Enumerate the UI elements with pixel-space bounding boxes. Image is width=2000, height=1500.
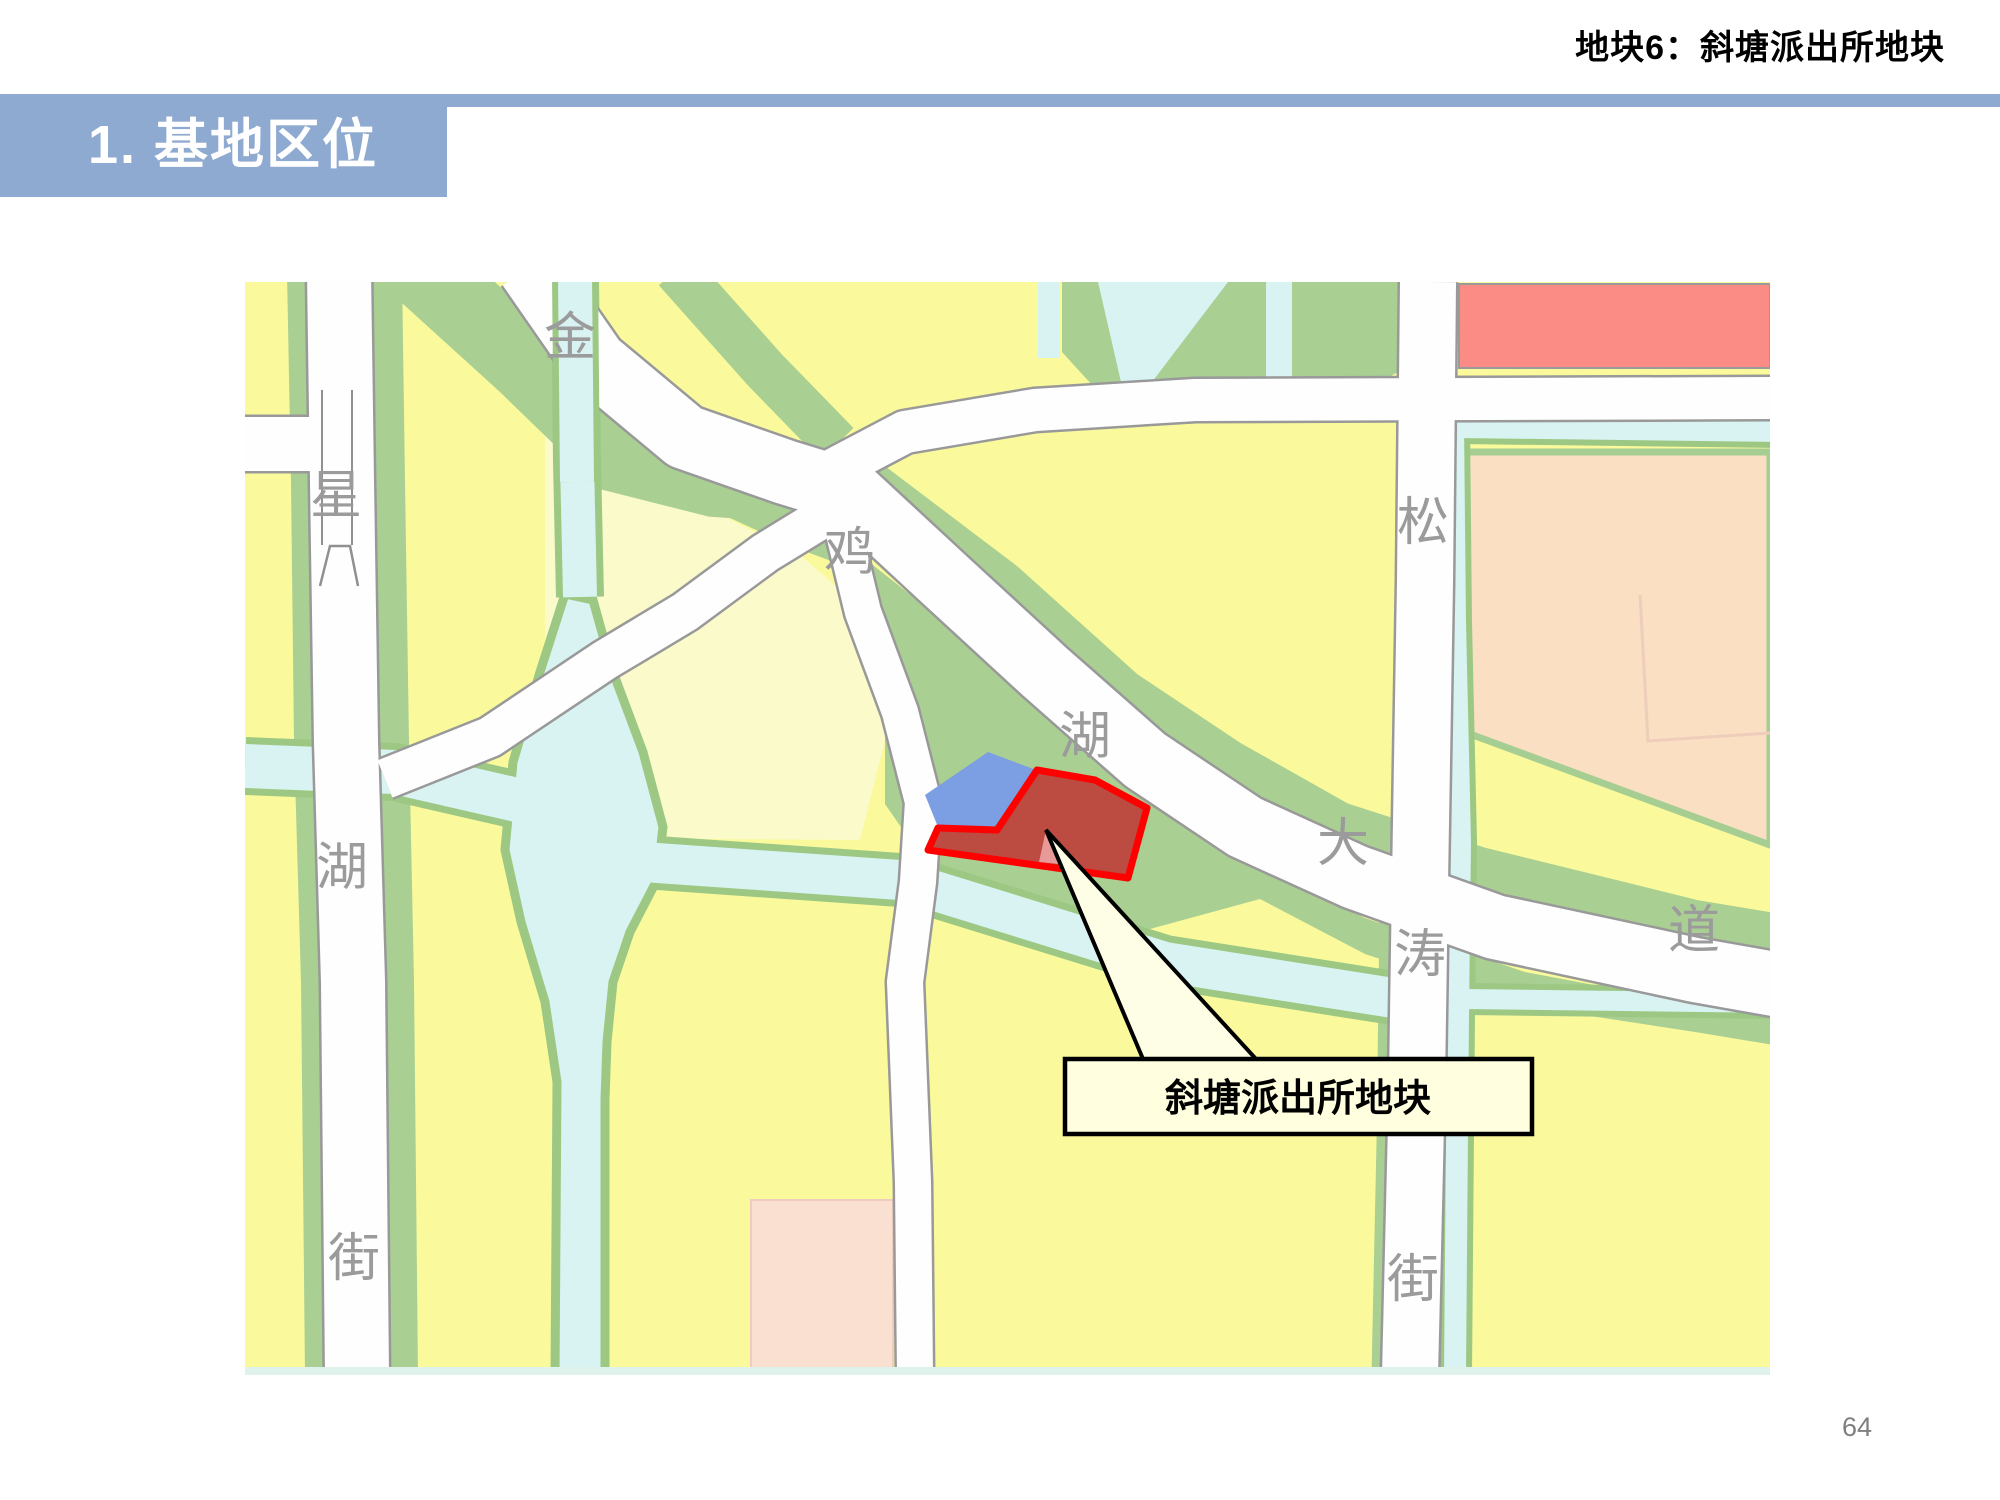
water-patch-top-1 [1038, 282, 1060, 358]
page-number: 64 [1842, 1412, 1872, 1443]
water-patch-top-3 [1266, 282, 1292, 380]
location-map: 金 鸡 湖 大 道 星 湖 街 松 涛 街 斜塘派出所地块 [245, 282, 1770, 1375]
map-bottom-strip [245, 1367, 1770, 1375]
road-xinghu-street [339, 282, 357, 1375]
road-songtao-street [1410, 282, 1428, 1375]
parcel-pink-bottom [751, 1200, 893, 1375]
location-map-svg: 金 鸡 湖 大 道 星 湖 街 松 涛 街 斜塘派出所地块 [245, 282, 1770, 1375]
label-song: 松 [1397, 494, 1449, 552]
slide-header-title: 地块6：斜塘派出所地块 [1575, 20, 1945, 69]
label-jie1: 街 [328, 1230, 380, 1288]
label-hu2: 湖 [316, 839, 368, 897]
label-dao: 道 [1668, 902, 1720, 960]
label-jin: 金 [544, 309, 596, 367]
label-ji: 鸡 [824, 524, 876, 582]
label-xing: 星 [310, 467, 362, 525]
section-title: 1. 基地区位 [88, 94, 378, 197]
label-hu: 湖 [1059, 708, 1111, 766]
parcel-coral-topright [1459, 284, 1770, 368]
label-da: 大 [1317, 815, 1369, 873]
canal-top-right [1459, 426, 1770, 430]
label-tao: 涛 [1394, 926, 1446, 984]
callout-label: 斜塘派出所地块 [1165, 1078, 1431, 1120]
section-title-block: 1. 基地区位 [0, 94, 447, 197]
label-jie2: 街 [1387, 1251, 1439, 1309]
